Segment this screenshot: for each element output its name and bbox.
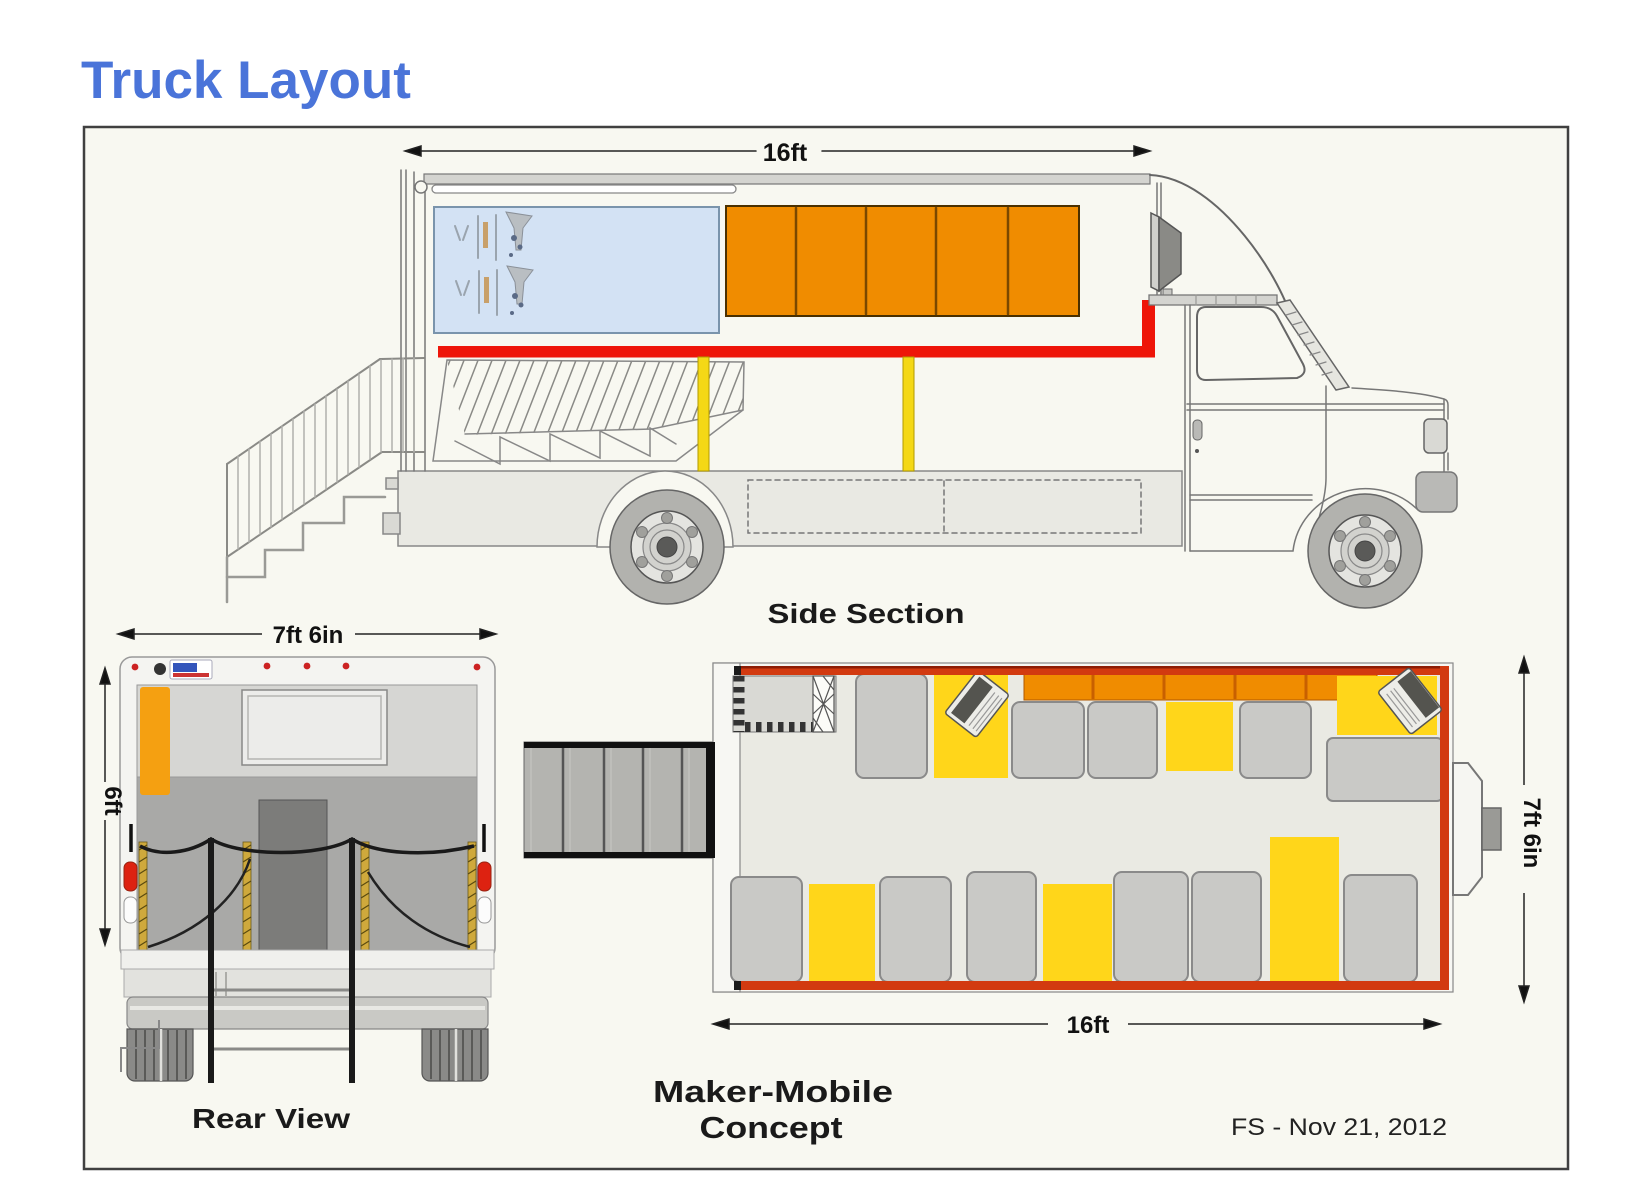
svg-text:Rear View: Rear View [192, 1103, 350, 1134]
svg-text:7ft 6in: 7ft 6in [1518, 798, 1545, 869]
svg-text:FS - Nov 21, 2012: FS - Nov 21, 2012 [1231, 1114, 1447, 1141]
svg-text:6ft: 6ft [99, 786, 126, 815]
svg-text:Concept: Concept [700, 1110, 843, 1145]
svg-text:Side Section: Side Section [768, 598, 965, 629]
svg-text:Truck Layout: Truck Layout [81, 51, 411, 110]
svg-text:7ft 6in: 7ft 6in [273, 622, 344, 649]
svg-text:16ft: 16ft [1067, 1012, 1110, 1039]
svg-text:16ft: 16ft [763, 139, 808, 167]
svg-text:Maker-Mobile: Maker-Mobile [653, 1074, 893, 1109]
